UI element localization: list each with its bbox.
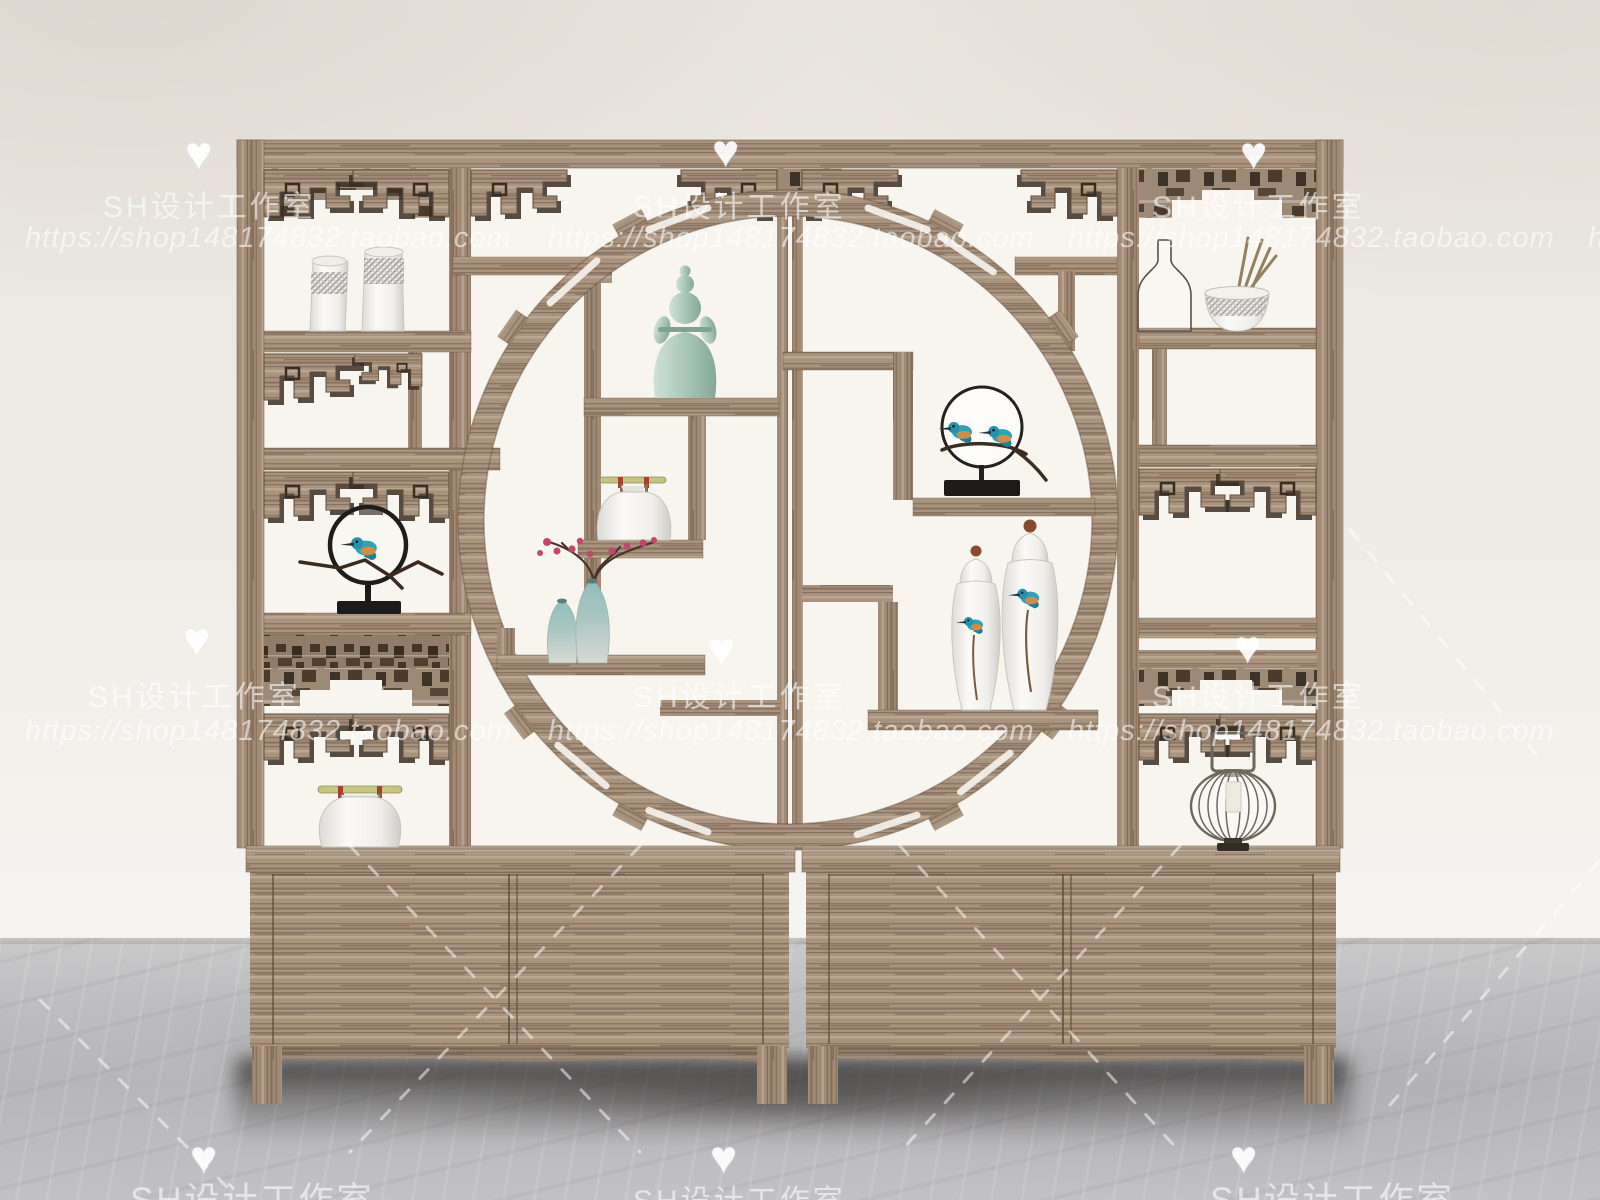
product-render: ♥ ♥ ♥ ♥ ♥ ♥ ♥ ♥ ♥ SH设计工作室 SH设计工作室 SH设计工作…: [0, 0, 1600, 1200]
valance-arch-cutout: [1202, 190, 1254, 218]
shelf: [1139, 618, 1317, 638]
fretwork-panel: [264, 635, 449, 668]
shelf: [264, 331, 471, 352]
left-cabinet: [246, 846, 795, 1104]
candle: [1226, 782, 1241, 812]
valance-arch-cutout: [1200, 680, 1252, 706]
cabinet-leg: [757, 1046, 787, 1104]
center-seam-post-right: [792, 168, 803, 848]
cabinet-leg: [808, 1046, 838, 1104]
right-post: [1316, 140, 1343, 848]
top-rail: [237, 140, 1343, 168]
inner-post: [584, 275, 601, 613]
right-cabinet: [802, 846, 1340, 1104]
shelf: [1139, 445, 1317, 467]
base-cabinets: [246, 846, 1340, 1104]
cabinet-leg: [1304, 1046, 1334, 1104]
display-shelf-upper: [237, 140, 1343, 850]
small-post: [1152, 349, 1167, 445]
display-shelf-render: [0, 0, 1600, 1200]
cabinet-leg: [252, 1046, 282, 1104]
right-divider-post: [1117, 168, 1139, 848]
left-post: [237, 140, 264, 848]
shelf: [264, 613, 471, 635]
center-seam-post-left: [777, 168, 788, 848]
rail: [1139, 650, 1317, 668]
valance-arch-cutout: [330, 680, 382, 706]
